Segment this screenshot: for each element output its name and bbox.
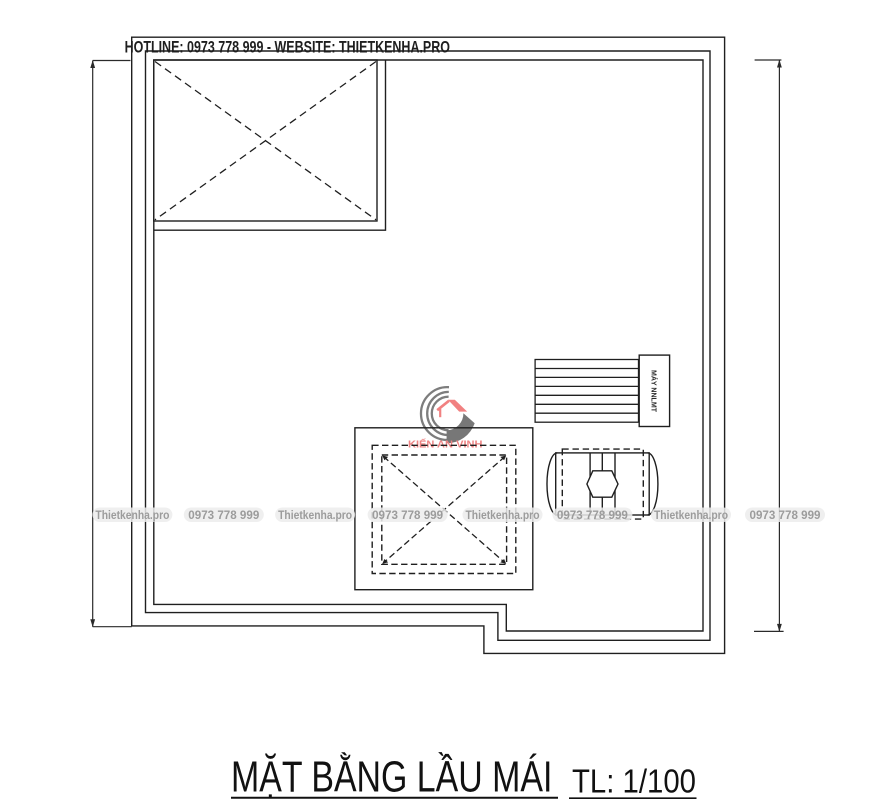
svg-text:0973 778 999: 0973 778 999 <box>557 508 628 522</box>
svg-text:Thietkenha.pro: Thietkenha.pro <box>278 508 352 522</box>
svg-text:KIẾN AN VINH: KIẾN AN VINH <box>408 438 483 451</box>
svg-text:0973 778 999: 0973 778 999 <box>750 508 821 522</box>
svg-text:Thietkenha.pro: Thietkenha.pro <box>654 508 728 522</box>
svg-text:TL: 1/100: TL: 1/100 <box>572 763 696 800</box>
svg-text:MÁY NNLMT: MÁY NNLMT <box>649 370 658 412</box>
svg-text:Thietkenha.pro: Thietkenha.pro <box>466 508 540 522</box>
svg-text:0973 778 999: 0973 778 999 <box>372 508 443 522</box>
svg-text:MẶT BẰNG LẦU MÁI: MẶT BẰNG LẦU MÁI <box>231 752 552 802</box>
svg-text:Thietkenha.pro: Thietkenha.pro <box>95 508 169 522</box>
svg-text:HOTLINE: 0973 778 999 - WEBSIT: HOTLINE: 0973 778 999 - WEBSITE: THIETKE… <box>125 38 450 57</box>
svg-text:0973 778 999: 0973 778 999 <box>188 508 259 522</box>
